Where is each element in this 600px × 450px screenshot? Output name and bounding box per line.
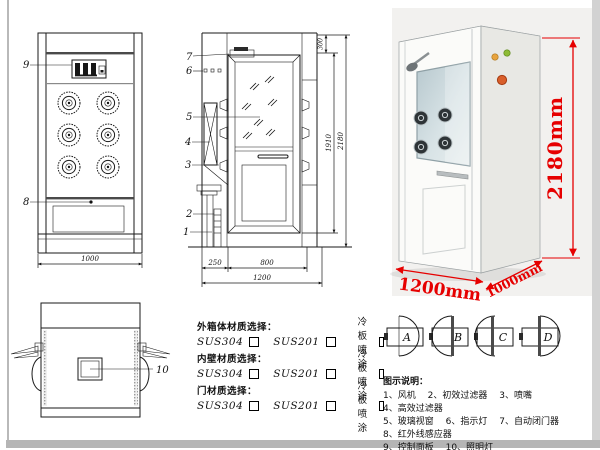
dim-horizontal-group: 250 800 1200 [202,247,322,287]
dim-250: 250 [207,259,222,267]
green-button [504,50,510,56]
material-checkbox[interactable] [249,369,259,379]
glass-hatch-marks [242,76,277,139]
material-option-label: SUS201 [273,336,319,348]
svg-text:A: A [402,331,411,344]
svg-text:2180mm: 2180mm [543,96,567,200]
material-option-label: SUS304 [197,400,243,412]
part-label-10: 10 [156,365,169,376]
dim-1910: 1910 [325,134,333,152]
material-option-label: SUS201 [273,368,319,380]
top-view-drawing: 10 [8,295,183,435]
legend-item: 9、控制面板 [383,443,434,450]
door-swing-options: A B C D [383,300,568,372]
material-checkbox[interactable] [249,337,259,347]
main-body [41,328,140,408]
top-band [46,52,134,54]
cabinet-side-face [481,26,540,273]
spec-sheet-page: 9 8 [0,0,600,450]
legend-item: 5、玻璃视窗 [383,417,434,427]
side-section-drawing: 7 6 5 4 3 2 1 300 1910 2180 [170,25,362,293]
legend-line: 5、玻璃视窗 6、指示灯 7、自动闭门器 8、红外线感应器 [383,416,593,442]
material-option-label: SUS201 [273,400,319,412]
nozzle-icon [97,156,119,178]
door-lower-panel [242,165,286,221]
orange-button [497,75,506,84]
dim-2180: 2180 [337,132,345,151]
part-label-2: 2 [185,209,192,220]
legend-item: 7、自动闭门器 [499,417,559,427]
nozzle-icon [58,124,80,146]
legend-item: 4、高效过滤器 [383,404,443,414]
nozzle-icon [58,92,80,114]
legend-item: 1、风机 [383,391,416,401]
legend-item: 3、喷嘴 [499,391,532,401]
legend-item: 8、红外线感应器 [383,430,452,440]
door-option-d: D [519,316,560,356]
material-options-row: SUS304 SUS201 冷板喷涂 [197,399,393,412]
part-label-5: 5 [186,112,192,123]
legend-item: 2、初效过滤器 [428,391,488,401]
left-door-hardware [11,343,43,391]
dim-800: 800 [260,259,274,267]
sensor-dot [89,200,92,203]
part-label-9: 9 [23,60,30,71]
svg-text:C: C [499,331,508,344]
legend-block: 图示说明： 1、风机 2、初效过滤器 3、喷嘴 4、高效过滤器 5、玻璃视窗 6… [383,376,593,450]
filter-icon [204,103,228,185]
material-option-label: SUS304 [197,336,243,348]
door-option-b: B [429,316,468,356]
legend-item: 6、指示灯 [446,417,488,427]
legend-title: 图示说明： [383,376,593,389]
dim-300: 300 [318,38,325,50]
fan-unit-icon [197,185,221,247]
air-grille [53,206,124,232]
part-label-1: 1 [183,227,189,238]
legend-line: 1、风机 2、初效过滤器 3、喷嘴 4、高效过滤器 [383,390,593,416]
glass-door [228,55,300,233]
indicator-lights-icon [204,69,221,72]
material-option-label: SUS304 [197,368,243,380]
side-nozzles-left [220,99,227,172]
part-label-4: 4 [184,137,191,148]
side-nozzles-right [302,99,309,172]
material-option-label: 冷板喷涂 [358,378,373,434]
door-option-c: C [474,316,513,356]
panel-divider [46,83,134,84]
material-checkbox[interactable] [326,401,336,411]
dim-vertical-group: 300 1910 2180 [302,35,350,247]
product-photo: 2180mm 1200mm 1000mm [383,8,595,304]
nozzle-icon [58,156,80,178]
cabinet-outline [38,33,142,253]
legend-line: 9、控制面板 10、照明灯 [383,442,593,450]
svg-text:B: B [453,331,462,344]
material-selection-block: 外箱体材质选择： SUS304 SUS201 冷板喷涂 内壁材质选择： SUS3… [193,316,393,415]
front-section [41,408,140,417]
back-section [41,303,140,328]
nozzle-array [58,92,119,178]
legend-item: 10、照明灯 [446,443,493,450]
part-label-7: 7 [186,52,193,63]
material-checkbox[interactable] [249,401,259,411]
nozzle-icon [97,124,119,146]
control-panel-icon [72,60,106,78]
right-wall-hatch [134,330,138,406]
material-checkbox[interactable] [326,337,336,347]
material-checkbox[interactable] [326,369,336,379]
part-label-6: 6 [186,66,193,77]
door-option-a: A [384,316,423,356]
left-wall-hatch [43,330,47,406]
svg-text:D: D [543,331,553,344]
door-handle [258,155,288,158]
dim-1200: 1200 [253,274,271,282]
leader-7 [193,54,229,56]
nozzle-icon [97,92,119,114]
yellow-button [492,54,498,60]
svg-text:1000: 1000 [81,255,99,263]
grille-band [46,197,134,199]
front-view-drawing: 9 8 [20,28,160,268]
part-label-8: 8 [23,197,29,208]
part-label-3: 3 [185,160,191,171]
dim-width-1000: 1000 [38,254,142,268]
